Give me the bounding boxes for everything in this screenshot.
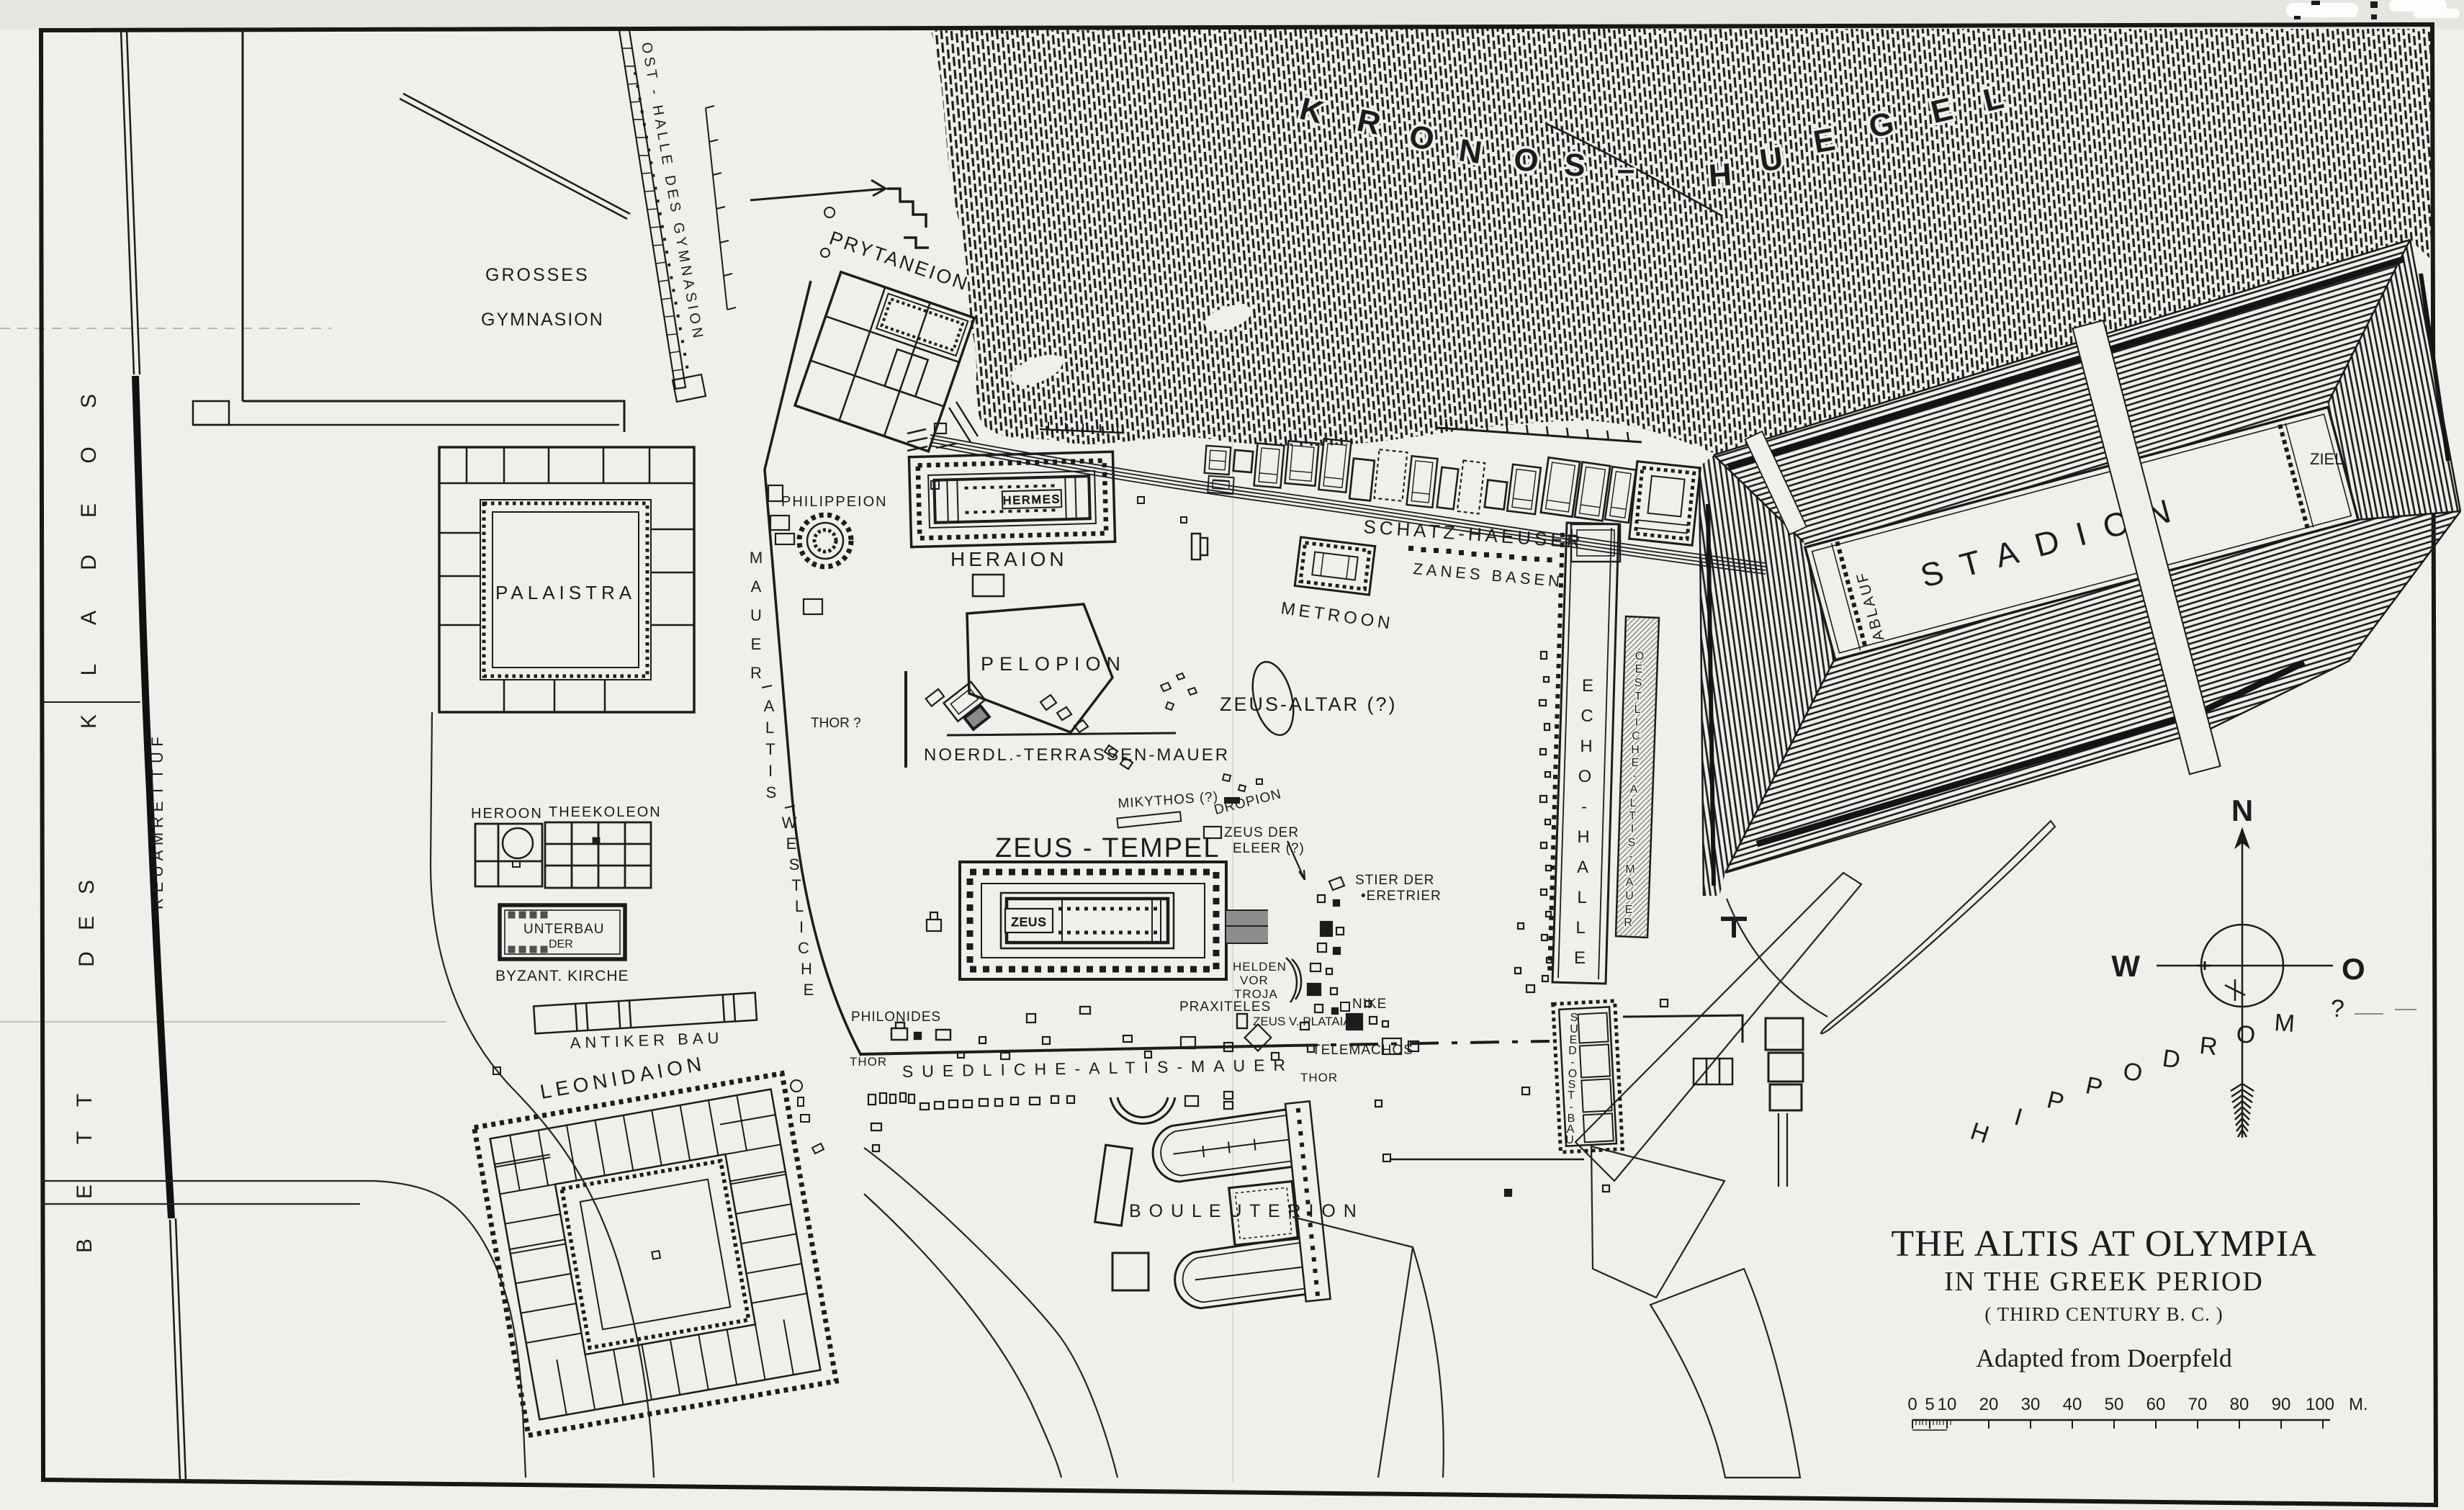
svg-text:U: U <box>1758 140 1785 179</box>
svg-text:L: L <box>795 897 804 915</box>
svg-text:STIER DER: STIER DER <box>1355 873 1434 888</box>
svg-text:S: S <box>766 783 777 801</box>
svg-text:D: D <box>1568 1045 1577 1057</box>
svg-text:T: T <box>148 769 166 778</box>
svg-text:Adapted from Doerpfeld: Adapted from Doerpfeld <box>1976 1344 2232 1372</box>
svg-text:E: E <box>73 1185 96 1199</box>
svg-text:U: U <box>148 866 166 877</box>
svg-text:5: 5 <box>1925 1395 1934 1414</box>
svg-text:D: D <box>75 951 99 967</box>
svg-text:PHILIPPEION: PHILIPPEION <box>781 494 888 510</box>
svg-text:M: M <box>1625 863 1635 876</box>
svg-text:W: W <box>782 814 797 832</box>
svg-text:I: I <box>768 762 773 780</box>
svg-text:HERAION: HERAION <box>950 548 1068 570</box>
svg-text:E: E <box>1625 904 1633 916</box>
svg-text:50: 50 <box>2105 1395 2124 1414</box>
svg-text:B: B <box>73 1239 96 1253</box>
svg-text:E: E <box>75 916 99 930</box>
svg-text:A: A <box>148 850 166 860</box>
svg-text:-: - <box>1570 1056 1574 1069</box>
svg-text:A: A <box>77 611 101 625</box>
svg-text:PELOPION: PELOPION <box>981 653 1126 675</box>
svg-text:A: A <box>1577 858 1588 877</box>
svg-text:L: L <box>765 719 774 737</box>
svg-text:S: S <box>1628 837 1636 849</box>
svg-text:ZEUS-ALTAR (?): ZEUS-ALTAR (?) <box>1220 693 1398 715</box>
svg-text:M: M <box>148 832 166 845</box>
svg-text:E: E <box>751 635 762 653</box>
svg-text:?: ? <box>2330 995 2344 1023</box>
svg-text:80: 80 <box>2230 1395 2249 1414</box>
svg-text:T: T <box>791 876 801 894</box>
svg-text:-: - <box>1581 797 1587 817</box>
svg-text:I: I <box>799 918 804 936</box>
svg-text:L: L <box>1575 918 1585 938</box>
svg-text:R: R <box>1624 917 1632 929</box>
svg-text:THOR ?: THOR ? <box>811 716 861 731</box>
svg-text:N: N <box>1457 132 1484 171</box>
svg-text:C: C <box>1581 706 1593 726</box>
svg-text:NIKE: NIKE <box>1352 997 1387 1012</box>
svg-text:THEEKOLEON: THEEKOLEON <box>549 804 662 820</box>
svg-text:R: R <box>2198 1032 2218 1061</box>
svg-text:D: D <box>2161 1045 2182 1074</box>
svg-text:100: 100 <box>2306 1395 2334 1414</box>
svg-text:20: 20 <box>1979 1395 1999 1414</box>
svg-text:R: R <box>148 817 166 828</box>
svg-text:T: T <box>1568 1089 1575 1102</box>
svg-text:U: U <box>750 606 762 624</box>
svg-text:O: O <box>2235 1020 2257 1049</box>
svg-text:NOERDL.-TERRASSEN-MAUER: NOERDL.-TERRASSEN-MAUER <box>924 745 1230 765</box>
svg-text:U: U <box>1625 890 1634 902</box>
svg-text:T: T <box>765 740 775 758</box>
svg-text:D: D <box>77 554 101 570</box>
svg-text:ZEUS - TEMPEL: ZEUS - TEMPEL <box>995 833 1220 863</box>
svg-text:T: T <box>73 1131 96 1144</box>
svg-text:30: 30 <box>2021 1395 2041 1414</box>
svg-text:R: R <box>750 664 762 682</box>
svg-text:R: R <box>148 898 166 909</box>
svg-text:H: H <box>1631 744 1640 756</box>
svg-text:N: N <box>2231 794 2253 827</box>
svg-text:IN THE GREEK PERIOD: IN THE GREEK PERIOD <box>1944 1267 2264 1297</box>
svg-text:HEROON: HEROON <box>471 806 543 822</box>
svg-text:I: I <box>1631 823 1634 835</box>
svg-text:E: E <box>804 981 814 999</box>
svg-text:90: 90 <box>2272 1395 2291 1414</box>
svg-text:C: C <box>798 939 809 957</box>
svg-text:ZEUS V. PLATAIAI: ZEUS V. PLATAIAI <box>1253 1015 1354 1028</box>
svg-text:-: - <box>1632 770 1636 782</box>
svg-text:H: H <box>1580 737 1592 756</box>
svg-text:GROSSES: GROSSES <box>485 265 590 285</box>
svg-text:UNTERBAU: UNTERBAU <box>523 922 605 937</box>
svg-text:60: 60 <box>2146 1395 2166 1414</box>
svg-text:HERMES: HERMES <box>1003 493 1061 507</box>
svg-text:-: - <box>1629 850 1632 863</box>
svg-text:PRAXITELES: PRAXITELES <box>1179 999 1271 1015</box>
svg-text:T: T <box>1635 691 1642 703</box>
svg-text:( THIRD CENTURY B. C. ): ( THIRD CENTURY B. C. ) <box>1984 1303 2223 1325</box>
svg-text:E: E <box>77 503 101 518</box>
svg-text:M: M <box>750 549 763 567</box>
svg-text:I: I <box>1635 716 1638 729</box>
svg-text:W: W <box>2111 949 2140 983</box>
svg-text:S: S <box>75 880 99 894</box>
svg-text:HELDEN: HELDEN <box>1233 960 1287 974</box>
svg-text:E: E <box>1632 757 1640 769</box>
svg-text:O: O <box>2342 952 2365 986</box>
svg-text:ZEUS DER: ZEUS DER <box>1224 825 1299 840</box>
svg-text:THOR: THOR <box>850 1055 887 1069</box>
svg-text:70: 70 <box>2188 1395 2208 1414</box>
svg-text:GYMNASION: GYMNASION <box>481 310 604 330</box>
svg-text:ZIEL: ZIEL <box>2310 450 2343 468</box>
svg-text:T: T <box>73 1094 96 1107</box>
svg-text:S: S <box>1570 1012 1578 1024</box>
svg-text:A: A <box>1630 783 1638 796</box>
svg-text:K: K <box>77 714 101 729</box>
svg-text:L: L <box>77 664 101 676</box>
svg-text:S: S <box>77 394 101 408</box>
svg-text:A: A <box>764 697 775 715</box>
svg-text:S: S <box>1563 147 1587 184</box>
svg-text:L: L <box>1577 888 1586 907</box>
svg-text:H: H <box>801 960 812 978</box>
svg-text:O: O <box>1512 141 1540 179</box>
svg-text:B O U L E U T E R I O N: B O U L E U T E R I O N <box>1129 1201 1358 1221</box>
svg-text:L: L <box>1630 797 1637 809</box>
svg-text:O: O <box>1578 767 1592 786</box>
svg-text:PALAISTRA: PALAISTRA <box>495 582 636 603</box>
svg-text:M.: M. <box>2349 1395 2368 1414</box>
svg-text:–: – <box>1617 152 1635 187</box>
svg-text:E: E <box>786 835 797 853</box>
svg-text:H: H <box>1707 157 1732 194</box>
svg-text:DER: DER <box>549 938 573 951</box>
svg-text:ZEUS: ZEUS <box>1011 915 1046 929</box>
svg-text:O: O <box>77 446 101 463</box>
svg-text:E: E <box>1635 663 1643 675</box>
svg-text:S: S <box>1635 677 1642 689</box>
svg-text:0: 0 <box>1907 1395 1917 1414</box>
svg-text:F: F <box>148 737 166 746</box>
svg-text:E: E <box>1574 948 1586 968</box>
svg-text:M: M <box>2273 1009 2296 1038</box>
svg-text:O: O <box>1635 650 1644 662</box>
svg-text:VOR: VOR <box>1240 974 1269 987</box>
svg-text:S: S <box>789 855 800 873</box>
svg-text:U: U <box>148 752 166 763</box>
svg-text:E: E <box>148 882 166 893</box>
svg-text:•ERETRIER: •ERETRIER <box>1361 889 1442 904</box>
svg-text:THOR: THOR <box>1300 1071 1338 1084</box>
svg-text:THE ALTIS AT OLYMPIA: THE ALTIS AT OLYMPIA <box>1891 1223 2316 1264</box>
svg-text:T: T <box>148 786 166 795</box>
svg-text:A: A <box>751 578 762 596</box>
svg-text:A: A <box>1626 876 1634 889</box>
svg-text:BYZANT. KIRCHE: BYZANT. KIRCHE <box>495 968 629 984</box>
svg-text:10: 10 <box>1938 1395 1957 1414</box>
svg-text:E: E <box>1582 676 1593 696</box>
svg-text:E: E <box>148 801 166 812</box>
svg-text:40: 40 <box>2063 1395 2082 1414</box>
svg-text:T: T <box>1629 810 1636 822</box>
svg-text:H: H <box>1577 827 1589 847</box>
svg-text:L: L <box>1635 704 1641 716</box>
svg-text:U: U <box>1565 1134 1574 1146</box>
svg-text:-: - <box>1569 1101 1573 1113</box>
svg-text:C: C <box>1632 730 1640 742</box>
